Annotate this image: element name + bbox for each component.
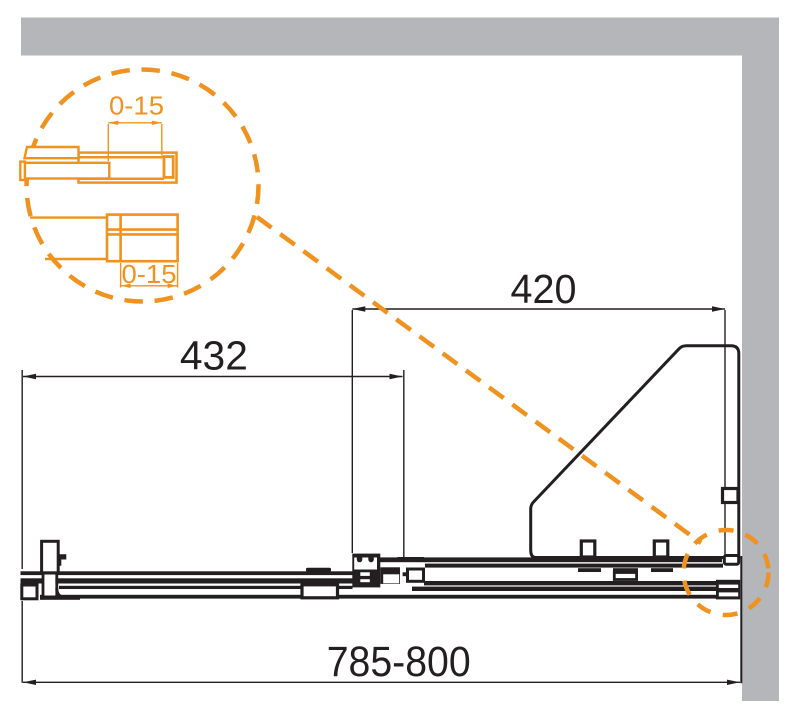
svg-text:432: 432 bbox=[180, 332, 248, 378]
svg-text:420: 420 bbox=[511, 266, 577, 312]
svg-text:785-800: 785-800 bbox=[327, 639, 471, 686]
svg-text:0-15: 0-15 bbox=[122, 261, 177, 289]
svg-text:0-15: 0-15 bbox=[109, 93, 164, 121]
